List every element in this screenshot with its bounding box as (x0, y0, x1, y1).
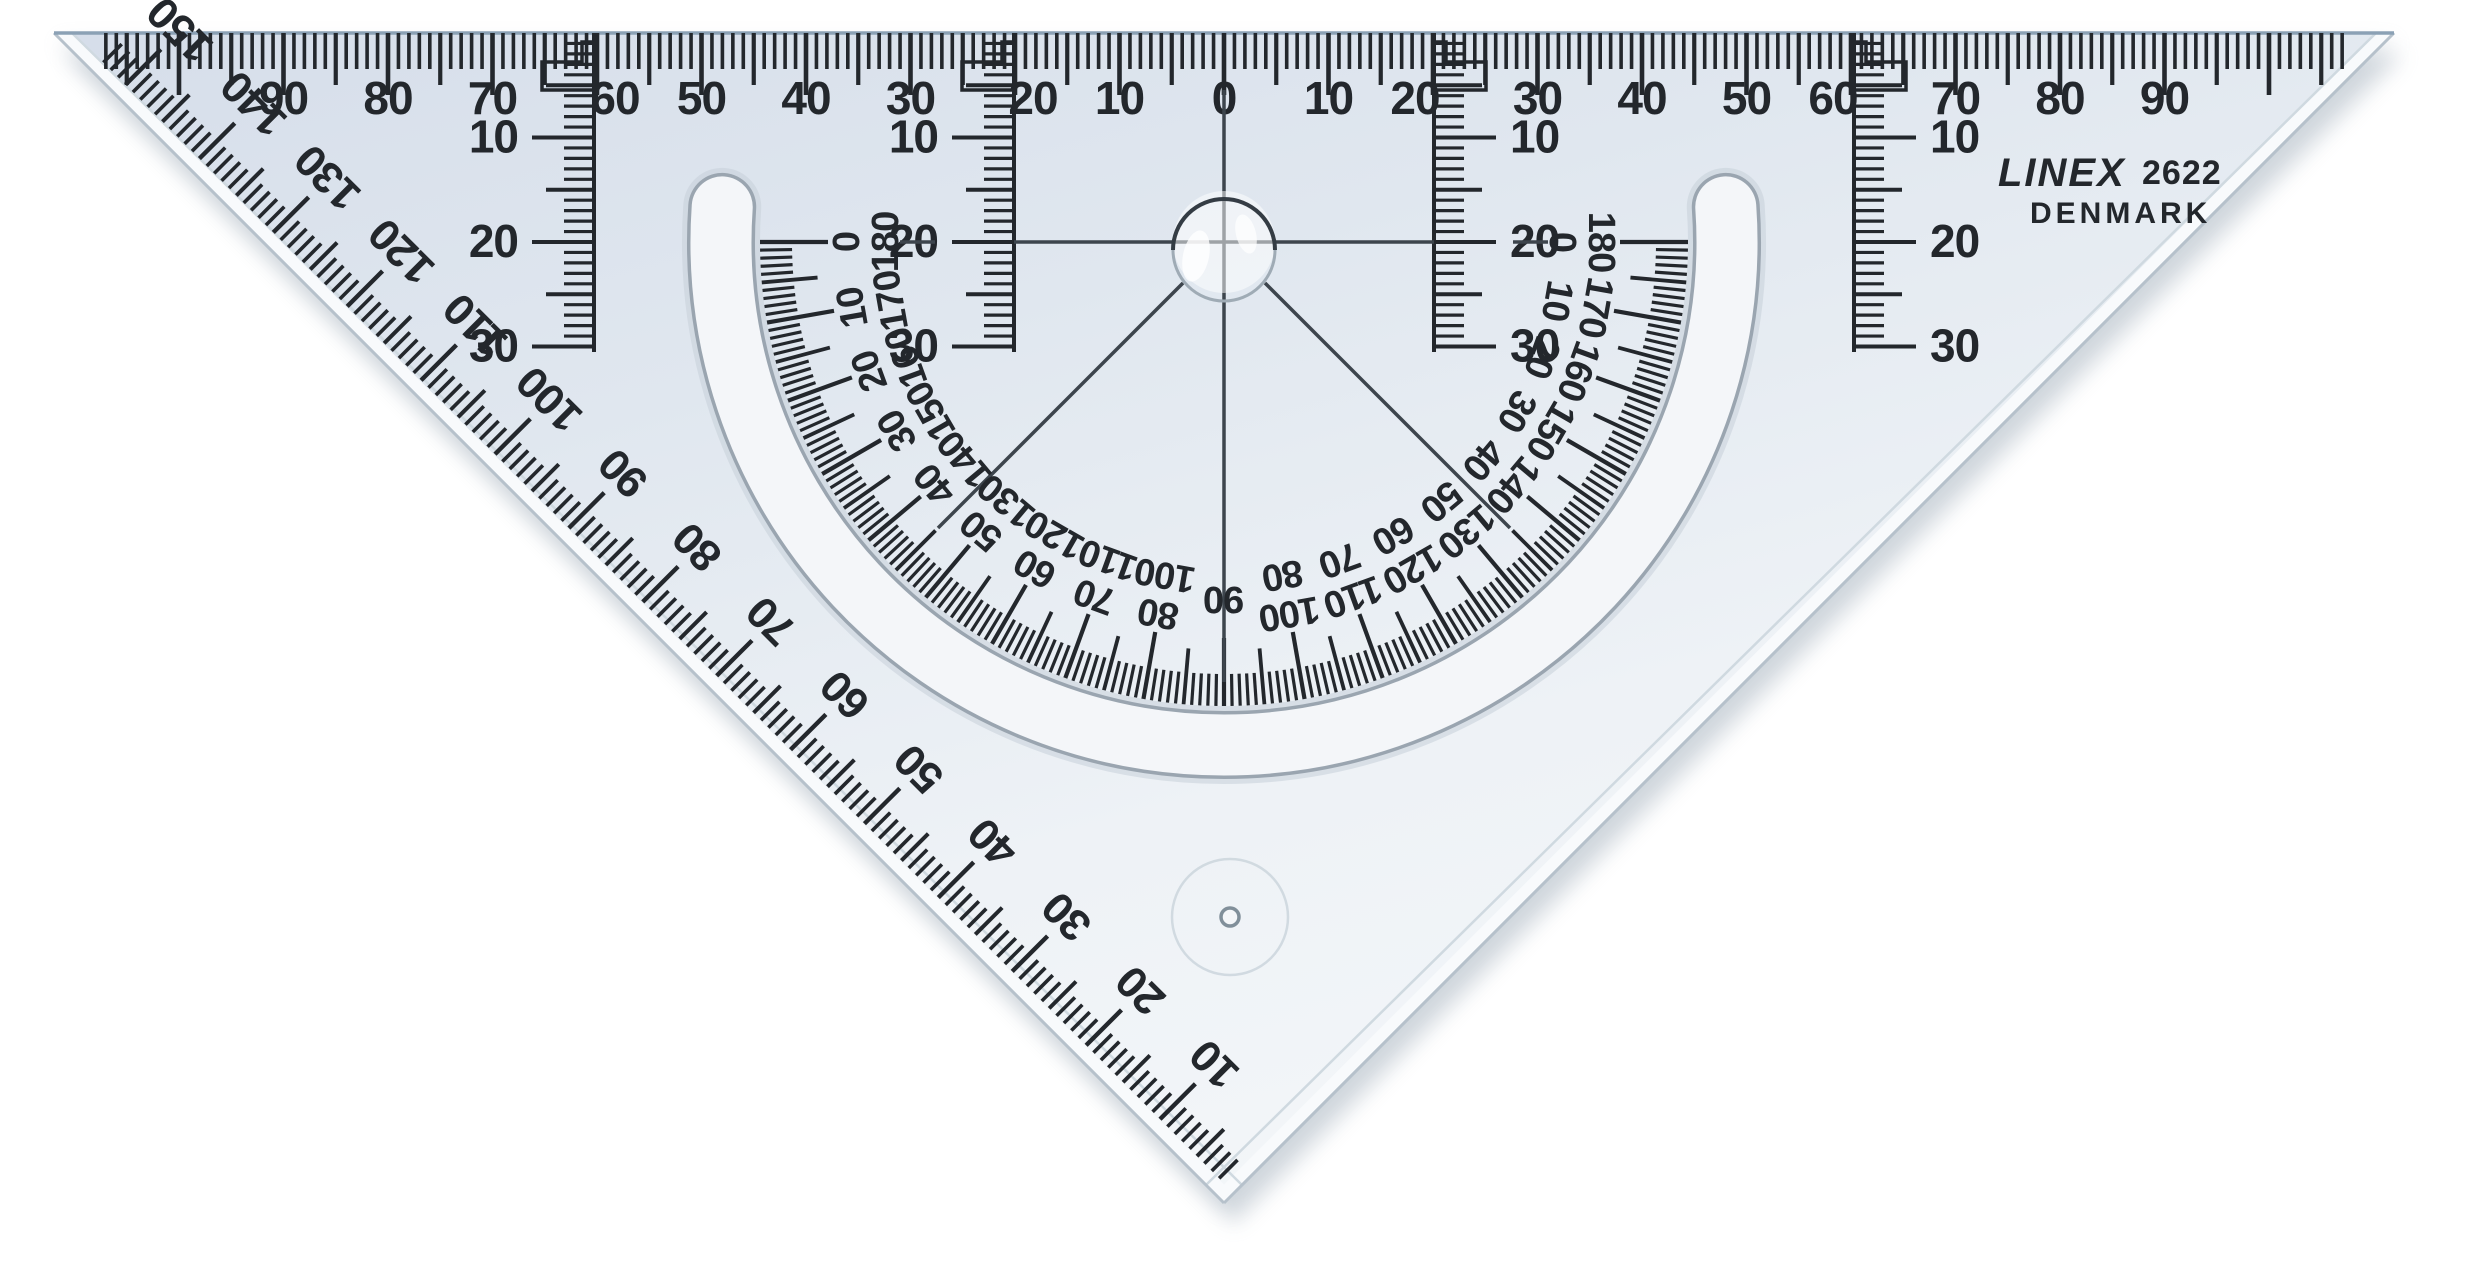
degree-tick (1247, 673, 1249, 705)
degree-tick (1208, 674, 1209, 706)
degree-tick (1254, 673, 1256, 705)
brand-country: DENMARK (2030, 197, 2211, 230)
degree-tick (760, 250, 792, 251)
degree-tick (1655, 265, 1687, 267)
depth-number: 10 (469, 111, 518, 163)
degree-tick (1232, 674, 1233, 706)
depth-number: 10 (1510, 111, 1559, 163)
ruler-number: 10 (1304, 72, 1353, 124)
degree-tick (1655, 272, 1687, 274)
ruler-number: 60 (590, 72, 639, 124)
ruler-number: 90 (2140, 72, 2189, 124)
degree-number-inner: 80 (1259, 551, 1306, 599)
degree-tick (761, 265, 793, 267)
degree-tick (1239, 674, 1240, 706)
ruler-number: 50 (1722, 72, 1771, 124)
degree-tick (760, 257, 792, 258)
degree-tick (1192, 673, 1194, 705)
brand-group: LINEX 2622 DENMARK (1998, 151, 2222, 230)
degree-tick (1216, 674, 1217, 706)
ruler-number: 60 (1808, 72, 1857, 124)
ruler-number: 40 (781, 72, 830, 124)
depth-number: 10 (1930, 111, 1979, 163)
degree-tick (1200, 673, 1202, 705)
ruler-number: 80 (2035, 72, 2084, 124)
degree-number-inner: 180 (865, 212, 907, 272)
ruler-number: 80 (363, 72, 412, 124)
linex-set-square-photo: 0101020203030404050506060707080809090 10… (0, 0, 2480, 1262)
degree-number-shared: 90 (1204, 578, 1244, 620)
degree-tick (761, 272, 793, 274)
degree-number-inner: 10 (1533, 277, 1581, 324)
brand-model: 2622 (2142, 154, 2222, 192)
degree-number-outer: 0 (826, 232, 868, 252)
brand-name: LINEX (1998, 151, 2126, 195)
depth-number: 20 (469, 215, 518, 267)
ruler-number: 10 (1095, 72, 1144, 124)
ruler-number: 50 (677, 72, 726, 124)
depth-number: 20 (1930, 215, 1979, 267)
degree-tick (1656, 257, 1688, 258)
depth-number: 30 (1930, 320, 1979, 372)
ruler-number: 40 (1617, 72, 1666, 124)
depth-number: 10 (889, 111, 938, 163)
degree-number-inner: 0 (1541, 232, 1583, 252)
degree-tick (1656, 250, 1688, 251)
degree-number-outer: 180 (1580, 212, 1622, 272)
ejector-pin-mark (1221, 908, 1239, 926)
